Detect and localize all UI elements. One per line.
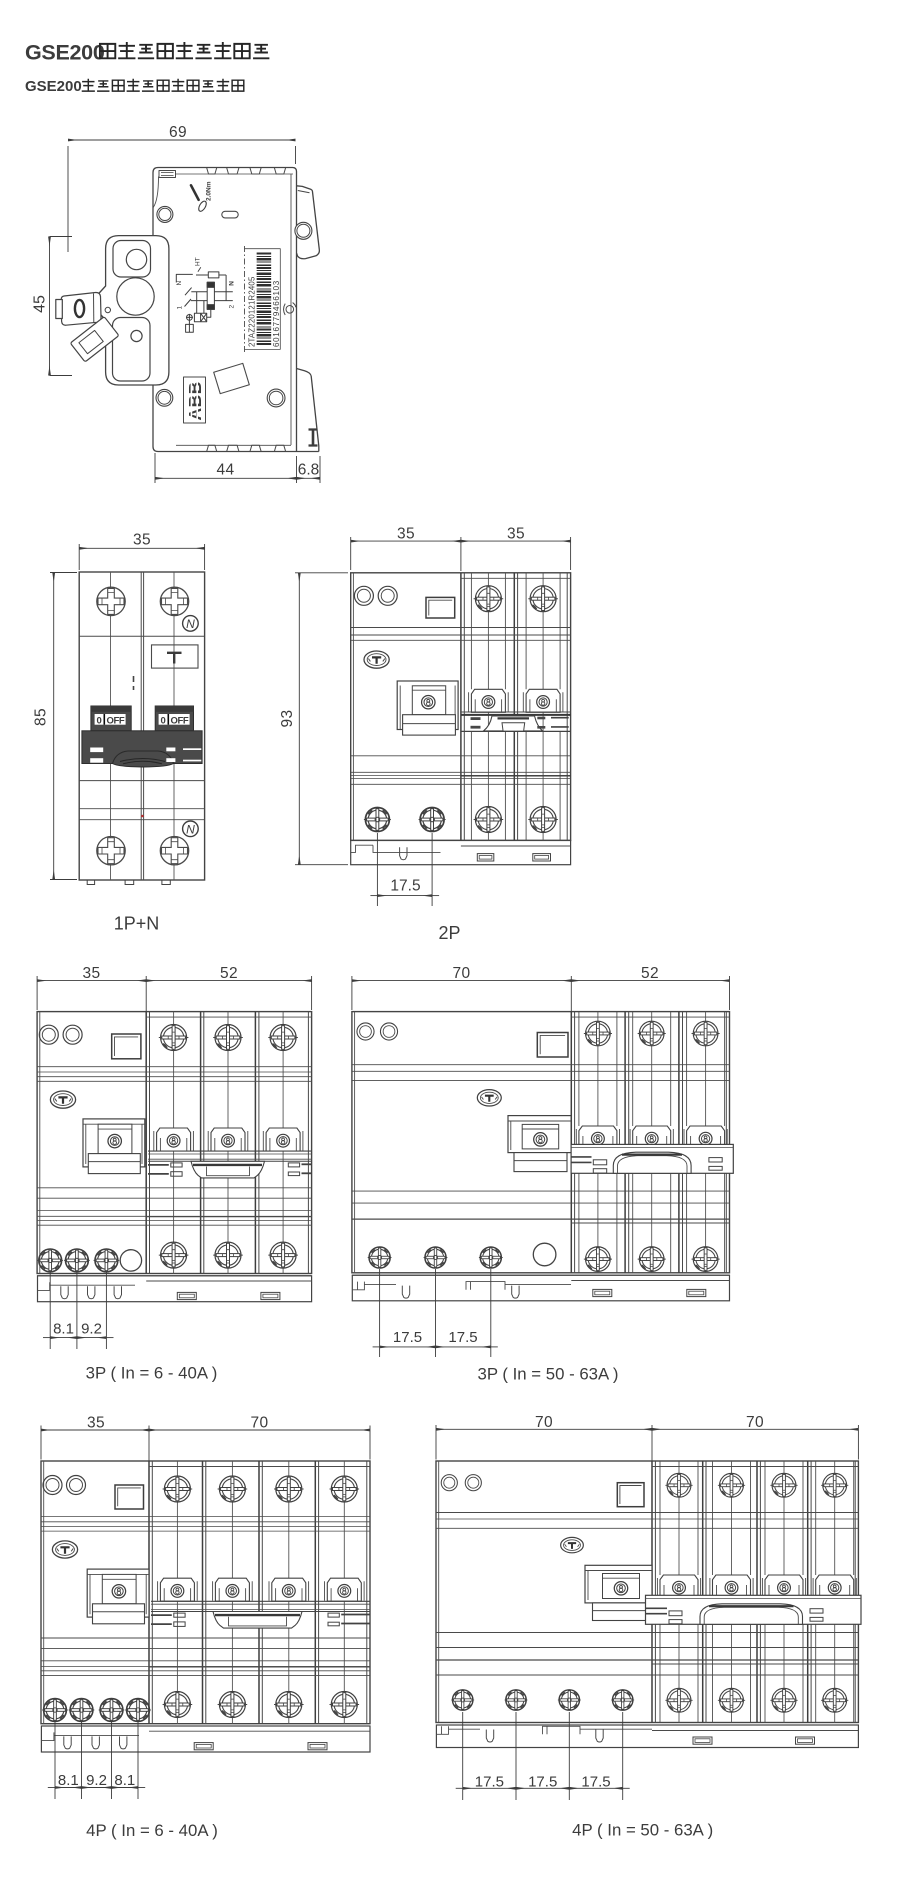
svg-text:45: 45	[32, 295, 49, 313]
svg-text:17.5: 17.5	[528, 1774, 557, 1791]
svg-text:0: 0	[97, 715, 102, 726]
svg-text:OFF: OFF	[171, 715, 189, 726]
svg-text:4P ( In = 6 - 40A ): 4P ( In = 6 - 40A )	[86, 1821, 218, 1840]
svg-text:8.1: 8.1	[114, 1772, 135, 1789]
svg-text:3P ( In = 6 - 40A ): 3P ( In = 6 - 40A )	[86, 1364, 218, 1383]
svg-text:9.2: 9.2	[86, 1772, 107, 1789]
svg-text:3P ( In = 50 - 63A ): 3P ( In = 50 - 63A )	[477, 1365, 618, 1384]
svg-text:17.5: 17.5	[390, 878, 420, 895]
svg-text:N: N	[176, 281, 183, 286]
svg-text:1: 1	[177, 306, 184, 310]
svg-text:2.0Nm: 2.0Nm	[206, 181, 213, 201]
svg-text:35: 35	[82, 965, 100, 982]
svg-text:1P+N: 1P+N	[114, 914, 160, 934]
svg-text:0: 0	[161, 715, 166, 726]
svg-text:2: 2	[228, 305, 235, 309]
svg-text:17.5: 17.5	[393, 1329, 422, 1346]
svg-text:70: 70	[250, 1415, 268, 1432]
svg-text:35: 35	[133, 532, 151, 549]
svg-text:GSE200: GSE200	[25, 41, 105, 65]
svg-text:6.8: 6.8	[298, 462, 320, 479]
svg-text:52: 52	[220, 965, 238, 982]
svg-text:9.2: 9.2	[81, 1321, 102, 1338]
svg-text:69: 69	[169, 124, 187, 141]
svg-text:70: 70	[452, 965, 470, 982]
svg-text:70: 70	[535, 1414, 553, 1431]
svg-text:17.5: 17.5	[448, 1329, 477, 1346]
svg-text:70: 70	[746, 1414, 764, 1431]
svg-text:35: 35	[87, 1415, 105, 1432]
svg-text:ABB: ABB	[185, 381, 205, 420]
svg-text:2TAZ220121R2405: 2TAZ220121R2405	[248, 276, 257, 347]
svg-text:35: 35	[507, 526, 525, 543]
svg-text:6016779466103: 6016779466103	[272, 280, 281, 347]
svg-text:4P ( In = 50 - 63A ): 4P ( In = 50 - 63A )	[572, 1821, 713, 1840]
svg-text:8.1: 8.1	[53, 1321, 74, 1338]
svg-text:85: 85	[33, 708, 50, 726]
svg-text:52: 52	[641, 965, 659, 982]
svg-text:93: 93	[279, 709, 296, 727]
svg-text:35: 35	[397, 526, 415, 543]
svg-text:HT: HT	[195, 257, 202, 266]
svg-text:GSE200: GSE200	[25, 78, 82, 95]
svg-text:2P: 2P	[438, 923, 460, 943]
svg-text:17.5: 17.5	[475, 1774, 504, 1791]
svg-text:17.5: 17.5	[581, 1774, 610, 1791]
svg-text:N: N	[228, 281, 235, 286]
svg-text:OFF: OFF	[107, 715, 125, 726]
svg-text:8.1: 8.1	[58, 1772, 79, 1789]
svg-text:44: 44	[216, 462, 234, 479]
